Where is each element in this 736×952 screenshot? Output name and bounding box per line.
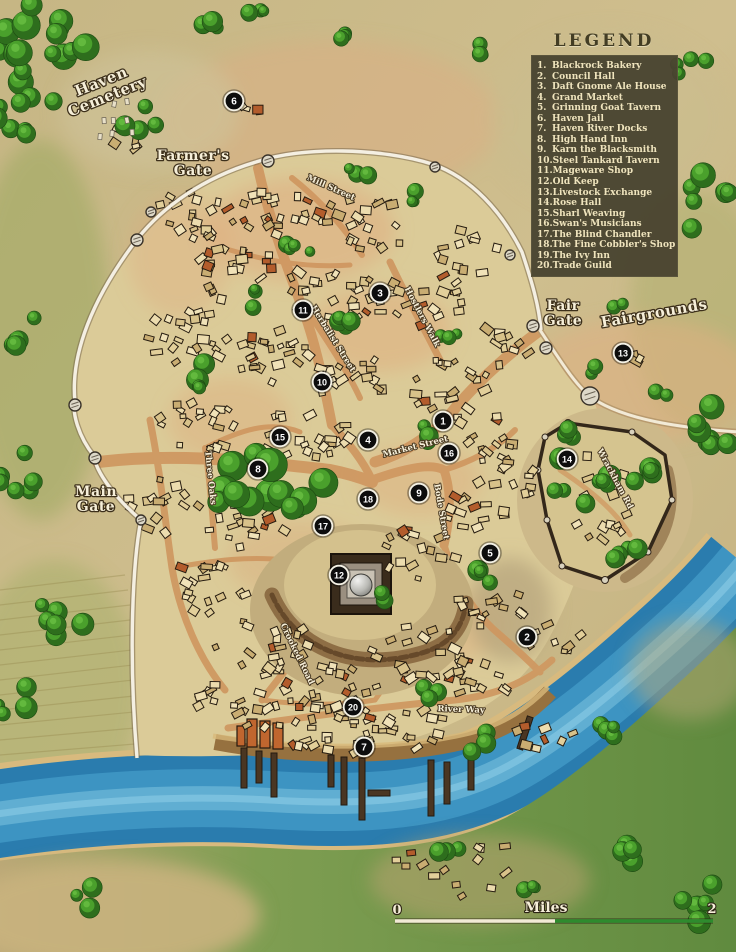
legend-panel: 1.Blackrock Bakery2.Council Hall3.Daft G… <box>531 55 678 277</box>
legend-item-number: 12. <box>537 177 553 188</box>
tree-icon <box>588 359 603 374</box>
legend-item-label: Trade Guild <box>553 261 612 272</box>
legend-item-number: 1. <box>537 61 552 72</box>
svg-text:20: 20 <box>348 702 358 712</box>
gate-tower-icon <box>581 387 599 405</box>
legend-item-label: Council Hall <box>552 72 615 83</box>
tree-icon <box>45 93 63 111</box>
legend-item-label: Rose Hall <box>553 198 602 209</box>
legend-item: 1.Blackrock Bakery <box>537 61 674 72</box>
street-label: River Way <box>437 704 486 716</box>
svg-text:17: 17 <box>318 521 328 531</box>
legend-item-label: Haven Jail <box>552 114 604 125</box>
legend-item-label: Blackrock Bakery <box>552 61 642 72</box>
tree-icon <box>288 239 300 251</box>
map-marker-4: 4 <box>357 429 379 451</box>
tree-icon <box>82 877 102 897</box>
place-label: MainGate <box>75 484 117 515</box>
map-marker-5: 5 <box>479 542 501 564</box>
legend-item-label: Haven River Docks <box>552 124 647 135</box>
gate-tower-icon <box>540 342 552 354</box>
map-marker-17: 17 <box>312 515 334 537</box>
tree-icon <box>24 473 42 491</box>
legend-item: 8.High Hand Inn <box>537 135 674 146</box>
tree-icon <box>17 124 36 143</box>
map-marker-20: 20 <box>342 696 364 718</box>
gate-tower-icon <box>527 320 539 332</box>
gate-tower-icon <box>430 162 440 172</box>
legend-item-label: Livestock Exchange <box>553 188 652 199</box>
gate-tower-icon <box>89 452 101 464</box>
tree-icon <box>17 445 33 461</box>
tree-icon <box>421 690 438 707</box>
legend-title: LEGEND <box>529 31 679 51</box>
legend-item-label: Steel Tankard Tavern <box>553 156 660 167</box>
map-marker-3: 3 <box>369 282 391 304</box>
tree-icon <box>688 414 706 432</box>
tree-icon <box>374 585 389 600</box>
map-marker-6: 6 <box>223 90 245 112</box>
tree-icon <box>608 721 620 733</box>
legend-item-number: 9. <box>537 145 552 156</box>
map-marker-11: 11 <box>292 299 314 321</box>
tree-icon <box>11 93 30 112</box>
legend-item-number: 2. <box>537 72 552 83</box>
svg-text:5: 5 <box>487 548 493 559</box>
svg-text:8: 8 <box>255 464 261 475</box>
legend-item-label: The Fine Cobbler's Shop <box>552 240 675 251</box>
legend-item-number: 11. <box>537 166 553 177</box>
legend-item: 13.Livestock Exchange <box>537 188 674 199</box>
tree-icon <box>6 336 26 356</box>
scale-zero: 0 <box>392 903 401 918</box>
legend-item-label: The Blind Chandler <box>553 230 652 241</box>
gate-tower-icon <box>131 234 143 246</box>
tree-icon <box>35 598 49 612</box>
map-marker-18: 18 <box>357 488 379 510</box>
tree-icon <box>463 743 481 761</box>
tree-icon <box>193 381 206 394</box>
legend-item-number: 4. <box>537 93 552 104</box>
legend-item: 5.Grinning Goat Tavern <box>537 103 674 114</box>
map-marker-9: 9 <box>408 482 430 504</box>
legend-item-number: 17. <box>537 230 553 241</box>
tree-icon <box>6 40 32 66</box>
tree-icon <box>148 117 164 133</box>
tree-icon <box>703 875 722 894</box>
legend-item-label: High Hand Inn <box>552 135 628 146</box>
legend-item-number: 14. <box>537 198 553 209</box>
legend-item: 15.Sharl Weaving <box>537 209 674 220</box>
legend-item-number: 15. <box>537 209 553 220</box>
svg-text:13: 13 <box>618 348 628 358</box>
tree-icon <box>691 163 716 188</box>
tree-icon <box>698 53 714 69</box>
map-marker-10: 10 <box>311 371 333 393</box>
legend-item-number: 6. <box>537 114 552 125</box>
tree-icon <box>718 434 736 454</box>
legend-item-label: Grand Market <box>552 93 623 104</box>
legend-item-number: 7. <box>537 124 552 135</box>
tree-icon <box>344 163 354 173</box>
legend-item-number: 5. <box>537 103 552 114</box>
tree-icon <box>258 6 269 17</box>
scale-units: Miles <box>525 900 568 916</box>
tree-icon <box>223 481 250 508</box>
svg-text:11: 11 <box>298 305 308 315</box>
svg-text:18: 18 <box>363 494 373 504</box>
tree-icon <box>547 483 563 499</box>
tree-icon <box>442 331 456 345</box>
tree-icon <box>627 539 647 559</box>
tree-icon <box>7 482 24 499</box>
tree-icon <box>559 420 577 438</box>
map-marker-16: 16 <box>438 442 460 464</box>
gate-tower-icon <box>146 207 156 217</box>
tree-icon <box>606 550 625 569</box>
tree-icon <box>682 219 702 239</box>
tree-icon <box>15 697 37 719</box>
legend-item-number: 8. <box>537 135 552 146</box>
map-marker-15: 15 <box>269 426 291 448</box>
tree-icon <box>472 46 488 62</box>
tree-icon <box>674 891 692 909</box>
legend-item: 10.Steel Tankard Tavern <box>537 156 674 167</box>
svg-text:1: 1 <box>440 416 446 427</box>
map-marker-8: 8 <box>247 458 269 480</box>
tree-icon <box>407 196 418 207</box>
tree-icon <box>202 11 223 32</box>
svg-text:7: 7 <box>361 742 367 753</box>
gate-tower-icon <box>136 515 146 525</box>
legend-item: 17.The Blind Chandler <box>537 230 674 241</box>
svg-text:9: 9 <box>416 488 422 499</box>
walled-compound <box>517 408 693 592</box>
tree-icon <box>46 615 66 635</box>
map-marker-12: 12 <box>328 564 350 586</box>
legend-item: 4.Grand Market <box>537 93 674 104</box>
svg-text:12: 12 <box>334 570 344 580</box>
map-marker-2: 2 <box>516 626 538 648</box>
tree-icon <box>623 840 641 858</box>
legend-item: 6.Haven Jail <box>537 114 674 125</box>
svg-text:14: 14 <box>562 454 572 464</box>
tree-icon <box>281 497 303 519</box>
tree-icon <box>334 31 349 46</box>
tree-icon <box>359 167 377 185</box>
tree-icon <box>576 494 595 513</box>
tree-icon <box>626 472 644 490</box>
tree-icon <box>138 99 153 114</box>
map-marker-7: 7 <box>353 736 375 758</box>
legend-item-number: 18. <box>537 240 552 251</box>
tree-icon <box>241 4 258 21</box>
legend-item: 19.The Ivy Inn <box>537 251 674 262</box>
legend-item: 11.Mageware Shop <box>537 166 674 177</box>
tree-icon <box>250 284 260 294</box>
legend-item-number: 16. <box>537 219 553 230</box>
legend-item: 16.Swan's Musicians <box>537 219 674 230</box>
legend-item-label: Sharl Weaving <box>553 209 626 220</box>
legend-item-label: Grinning Goat Tavern <box>552 103 661 114</box>
legend-item: 2.Council Hall <box>537 72 674 83</box>
tree-icon <box>643 462 659 478</box>
tree-icon <box>46 23 67 44</box>
legend-item-number: 19. <box>537 251 553 262</box>
svg-text:10: 10 <box>317 377 327 387</box>
legend-item: 3.Daft Gnome Ale House <box>537 82 674 93</box>
place-label: FairGate <box>544 298 582 329</box>
tree-icon <box>527 881 539 893</box>
gate-tower-icon <box>69 399 81 411</box>
svg-text:2: 2 <box>524 632 530 643</box>
tree-icon <box>305 247 315 257</box>
svg-text:4: 4 <box>365 435 371 446</box>
tree-icon <box>17 678 37 698</box>
legend-item-number: 3. <box>537 82 552 93</box>
tree-icon <box>45 46 61 62</box>
legend-item-number: 20. <box>537 261 553 272</box>
map-marker-1: 1 <box>432 410 454 432</box>
legend-item-label: Swan's Musicians <box>553 219 642 230</box>
tree-icon <box>80 898 100 918</box>
legend-item-label: Karn the Blacksmith <box>552 145 657 156</box>
legend-item-label: Mageware Shop <box>553 166 633 177</box>
gate-tower-icon <box>262 155 274 167</box>
scale-two: 2 <box>707 902 716 917</box>
legend-item: 7.Haven River Docks <box>537 124 674 135</box>
legend-item: 12.Old Keep <box>537 177 674 188</box>
legend-item: 20.Trade Guild <box>537 261 674 272</box>
tree-icon <box>27 311 41 325</box>
legend-item-label: Old Keep <box>553 177 599 188</box>
legend-item-number: 13. <box>537 188 553 199</box>
tree-icon <box>245 300 261 316</box>
svg-text:6: 6 <box>231 96 237 107</box>
tree-icon <box>71 889 83 901</box>
map-marker-13: 13 <box>612 342 634 364</box>
tree-icon <box>72 34 99 61</box>
legend-item: 9.Karn the Blacksmith <box>537 145 674 156</box>
gate-tower-icon <box>505 250 515 260</box>
legend-item-number: 10. <box>537 156 553 167</box>
tree-icon <box>660 389 673 402</box>
map-marker-14: 14 <box>556 448 578 470</box>
legend-item: 18.The Fine Cobbler's Shop <box>537 240 674 251</box>
tree-icon <box>429 842 448 861</box>
tree-icon <box>720 184 736 201</box>
tree-icon <box>342 312 361 331</box>
tree-icon <box>686 193 702 209</box>
legend-item-label: Daft Gnome Ale House <box>552 82 667 93</box>
fantasy-town-map: HavenCemeteryFarmer'sGateFairGateFairgro… <box>0 0 736 952</box>
svg-text:3: 3 <box>377 288 383 299</box>
tree-icon <box>474 565 487 578</box>
legend-item: 14.Rose Hall <box>537 198 674 209</box>
tree-icon <box>683 52 698 67</box>
legend-item-label: The Ivy Inn <box>553 251 610 262</box>
svg-text:16: 16 <box>444 448 454 458</box>
tree-icon <box>482 575 497 590</box>
tree-icon <box>699 394 724 419</box>
svg-text:15: 15 <box>275 432 285 442</box>
tree-icon <box>72 613 94 635</box>
